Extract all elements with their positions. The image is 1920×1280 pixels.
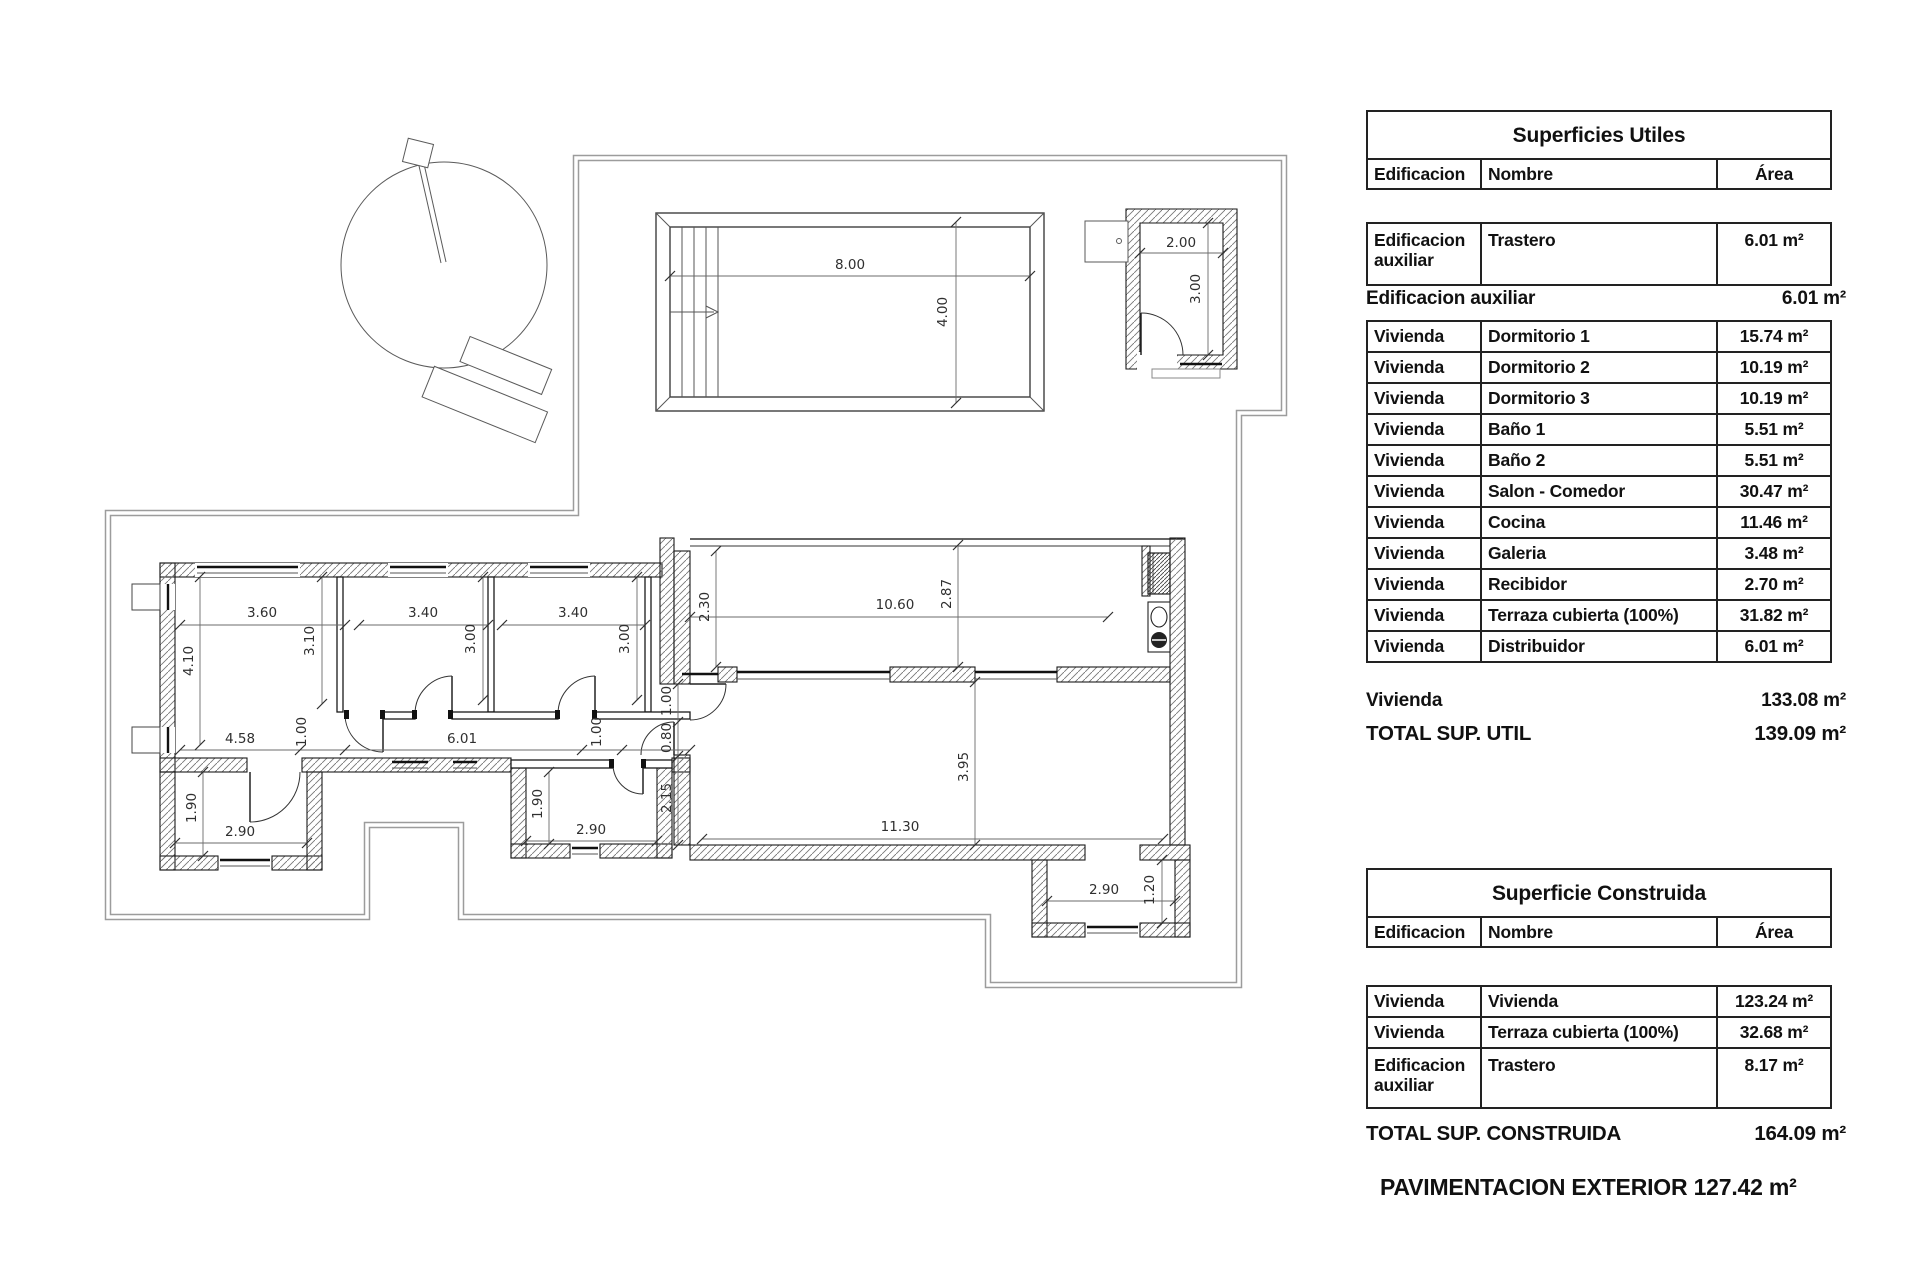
table-row: ViviendaBaño 25.51 m² <box>1368 446 1830 477</box>
table-row: ViviendaDistribuidor6.01 m² <box>1368 632 1830 661</box>
cell-edificacion: Vivienda <box>1368 632 1482 661</box>
bath2-window <box>572 848 598 854</box>
cell-edificacion: Vivienda <box>1368 987 1482 1016</box>
total-util-label: TOTAL SUP. UTIL <box>1366 722 1531 746</box>
cell-area: 8.17 m² <box>1718 1049 1830 1107</box>
table-construida-header: Superficie Construida Edificacion Nombre… <box>1366 868 1832 948</box>
table-row: ViviendaBaño 15.51 m² <box>1368 415 1830 446</box>
table-row: ViviendaCocina11.46 m² <box>1368 508 1830 539</box>
washer-appliance <box>1148 553 1170 594</box>
cell-edificacion: Vivienda <box>1368 601 1482 630</box>
cell-nombre: Baño 2 <box>1482 446 1718 475</box>
salon-entry-door <box>690 684 726 720</box>
table-row: ViviendaVivienda123.24 m² <box>1368 987 1830 1018</box>
total-construida-value: 164.09 m² <box>1754 1122 1846 1146</box>
dim-terraza-right: 2.87 <box>939 579 955 609</box>
cell-area: 123.24 m² <box>1718 987 1830 1016</box>
bath1-window <box>220 860 270 866</box>
cell-edificacion: Vivienda <box>1368 570 1482 599</box>
col-header-nombre: Nombre <box>1482 918 1718 946</box>
total-util-row: TOTAL SUP. UTIL 139.09 m² <box>1366 722 1846 746</box>
cell-nombre: Trastero <box>1482 224 1718 284</box>
cell-edificacion: Vivienda <box>1368 415 1482 444</box>
table-row: ViviendaDormitorio 210.19 m² <box>1368 353 1830 384</box>
cell-edificacion: Vivienda <box>1368 539 1482 568</box>
dim-terraza-left: 2.30 <box>697 592 713 622</box>
cell-nombre: Distribuidor <box>1482 632 1718 661</box>
table-construida-title: Superficie Construida <box>1368 870 1830 918</box>
salon-window-1 <box>737 672 890 679</box>
subtotal-aux-label: Edificacion auxiliar <box>1366 288 1535 310</box>
cell-nombre: Baño 1 <box>1482 415 1718 444</box>
cell-nombre: Dormitorio 3 <box>1482 384 1718 413</box>
dim-hall-door-right: 1.00 <box>589 717 605 747</box>
cell-nombre: Dormitorio 2 <box>1482 353 1718 382</box>
dim-porch-depth: 1.20 <box>1142 875 1158 905</box>
swimming-pool <box>656 213 1044 411</box>
table-row: Edificacion auxiliar Trastero 6.01 m² <box>1368 224 1830 284</box>
dim-dorm2-height: 3.00 <box>463 624 479 654</box>
cell-nombre: Terraza cubierta (100%) <box>1482 1018 1718 1047</box>
dim-trastero-width: 2.00 <box>1166 235 1196 251</box>
kitchen-fixtures <box>1148 553 1170 652</box>
cell-edificacion: Vivienda <box>1368 446 1482 475</box>
house-exterior-walls <box>160 538 1190 937</box>
windows <box>132 563 1138 933</box>
cell-edificacion: Edificacion auxiliar <box>1368 1049 1482 1107</box>
col-header-nombre: Nombre <box>1482 160 1718 188</box>
bedroom2-door <box>415 676 452 714</box>
subtotal-aux-value: 6.01 m² <box>1782 288 1846 310</box>
cell-nombre: Salon - Comedor <box>1482 477 1718 506</box>
subtotal-vivienda-label: Vivienda <box>1366 690 1442 712</box>
cell-area: 6.01 m² <box>1718 632 1830 661</box>
cell-area: 32.68 m² <box>1718 1018 1830 1047</box>
dim-dorm3-height: 3.00 <box>617 624 633 654</box>
left-wall-window-1 <box>132 584 175 610</box>
table-utiles-vivienda-box: ViviendaDormitorio 115.74 m² ViviendaDor… <box>1366 320 1832 663</box>
dim-hall-left: 4.58 <box>225 731 255 747</box>
dim-pool-height: 4.00 <box>935 297 951 327</box>
table-row: ViviendaDormitorio 310.19 m² <box>1368 384 1830 415</box>
pavimentacion-note: PAVIMENTACION EXTERIOR 127.42 m² <box>1380 1174 1797 1201</box>
col-header-edificacion: Edificacion <box>1368 160 1482 188</box>
dim-dorm1-height: 4.10 <box>181 646 197 676</box>
bath1-door <box>250 772 300 822</box>
dim-bath1-height: 1.90 <box>184 793 200 823</box>
trastero-room <box>1085 209 1237 378</box>
bedroom3-door <box>558 676 595 714</box>
cell-edificacion: Vivienda <box>1368 508 1482 537</box>
dim-entry-wall: 2.15 <box>659 783 675 813</box>
water-tank <box>341 138 552 442</box>
table-row: ViviendaDormitorio 115.74 m² <box>1368 322 1830 353</box>
dim-entry-door: 1.00 <box>659 686 675 716</box>
total-util-value: 139.09 m² <box>1754 722 1846 746</box>
cell-nombre: Recibidor <box>1482 570 1718 599</box>
dim-hall-length: 6.01 <box>447 731 477 747</box>
cell-area: 11.46 m² <box>1718 508 1830 537</box>
cell-area: 30.47 m² <box>1718 477 1830 506</box>
cell-area: 3.48 m² <box>1718 539 1830 568</box>
table-utiles-header: Superficies Utiles Edificacion Nombre Ár… <box>1366 110 1832 190</box>
table-row: Edificacion auxiliarTrastero8.17 m² <box>1368 1049 1830 1107</box>
hall-door <box>345 714 383 752</box>
dim-dorm3-width: 3.40 <box>558 605 588 621</box>
col-header-area: Área <box>1718 160 1830 188</box>
floor-plan-sheet: 8.00 4.00 2.00 3.00 3.60 3.40 3.40 4.10 … <box>0 0 1920 1280</box>
cell-nombre: Trastero <box>1482 1049 1718 1107</box>
cell-area: 10.19 m² <box>1718 353 1830 382</box>
cell-nombre: Vivienda <box>1482 987 1718 1016</box>
dim-trastero-height: 3.00 <box>1188 274 1204 304</box>
dim-bath1-width: 2.90 <box>225 824 255 840</box>
dim-dorm1-width: 3.60 <box>247 605 277 621</box>
bath2-door <box>613 764 643 794</box>
cell-area: 5.51 m² <box>1718 415 1830 444</box>
subtotal-aux-row: Edificacion auxiliar 6.01 m² <box>1366 288 1846 310</box>
cell-area: 10.19 m² <box>1718 384 1830 413</box>
bedroom3-window <box>528 563 590 577</box>
bedroom2-window <box>388 563 448 577</box>
porch-threshold <box>1087 927 1138 933</box>
bedroom1-window <box>195 563 300 577</box>
dim-bath2-height: 1.90 <box>530 789 546 819</box>
dim-bath2-width: 2.90 <box>576 822 606 838</box>
dim-entry-door2: 0.80 <box>659 723 675 753</box>
cell-nombre: Terraza cubierta (100%) <box>1482 601 1718 630</box>
dim-salon-length: 11.30 <box>881 819 920 835</box>
cell-edificacion: Vivienda <box>1368 322 1482 351</box>
table-row: ViviendaTerraza cubierta (100%)32.68 m² <box>1368 1018 1830 1049</box>
trastero-step <box>1152 369 1220 378</box>
dim-dorm2-width: 3.40 <box>408 605 438 621</box>
col-header-edificacion: Edificacion <box>1368 918 1482 946</box>
dim-hall-door-left: 1.00 <box>294 717 310 747</box>
trastero-door-arc <box>1141 313 1183 355</box>
cell-edificacion: Vivienda <box>1368 384 1482 413</box>
salon-window-2 <box>975 672 1057 679</box>
cell-area: 6.01 m² <box>1718 224 1830 284</box>
dim-dorm1-inner: 3.10 <box>302 626 318 656</box>
dim-salon-depth: 3.95 <box>956 752 972 782</box>
col-header-area: Área <box>1718 918 1830 946</box>
tank-valve-box <box>402 138 433 168</box>
dim-porch-width: 2.90 <box>1089 882 1119 898</box>
table-row: ViviendaTerraza cubierta (100%)31.82 m² <box>1368 601 1830 632</box>
cell-area: 15.74 m² <box>1718 322 1830 351</box>
table-utiles-aux-box: Edificacion auxiliar Trastero 6.01 m² <box>1366 222 1832 286</box>
cell-area: 5.51 m² <box>1718 446 1830 475</box>
subtotal-vivienda-row: Vivienda 133.08 m² <box>1366 690 1846 712</box>
cell-nombre: Dormitorio 1 <box>1482 322 1718 351</box>
cell-area: 2.70 m² <box>1718 570 1830 599</box>
dim-terraza-length: 10.60 <box>876 597 915 613</box>
subtotal-vivienda-value: 133.08 m² <box>1761 690 1846 712</box>
dim-pool-width: 8.00 <box>835 257 865 273</box>
left-wall-window-2 <box>132 727 175 753</box>
cell-nombre: Galeria <box>1482 539 1718 568</box>
total-construida-row: TOTAL SUP. CONSTRUIDA 164.09 m² <box>1366 1122 1846 1146</box>
table-construida-box: ViviendaVivienda123.24 m² ViviendaTerraz… <box>1366 985 1832 1109</box>
cell-nombre: Cocina <box>1482 508 1718 537</box>
cell-edificacion: Vivienda <box>1368 353 1482 382</box>
cell-edificacion: Vivienda <box>1368 1018 1482 1047</box>
table-row: ViviendaRecibidor2.70 m² <box>1368 570 1830 601</box>
cell-edificacion: Edificacion auxiliar <box>1368 224 1482 284</box>
table-row: ViviendaGaleria3.48 m² <box>1368 539 1830 570</box>
total-construida-label: TOTAL SUP. CONSTRUIDA <box>1366 1122 1621 1146</box>
table-row: ViviendaSalon - Comedor30.47 m² <box>1368 477 1830 508</box>
table-utiles-title: Superficies Utiles <box>1368 112 1830 160</box>
cell-area: 31.82 m² <box>1718 601 1830 630</box>
cell-edificacion: Vivienda <box>1368 477 1482 506</box>
